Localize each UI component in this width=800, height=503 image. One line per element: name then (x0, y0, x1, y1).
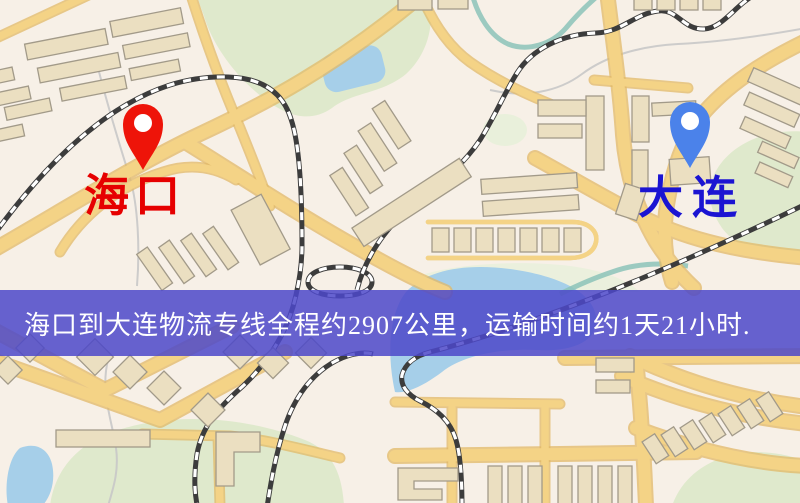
map-image (0, 0, 800, 503)
destination-city-label: 大连 (638, 174, 746, 222)
route-info-banner: 海口到大连物流专线全程约2907公里，运输时间约1天21小时. (0, 290, 800, 356)
destination-pin-icon[interactable] (666, 100, 714, 170)
origin-city-label: 海口 (84, 172, 186, 220)
route-info-text: 海口到大连物流专线全程约2907公里，运输时间约1天21小时. (24, 305, 751, 342)
origin-pin-icon[interactable] (119, 102, 167, 172)
map-canvas[interactable]: 海口 大连 海口到大连物流专线全程约2907公里，运输时间约1天21小时. (0, 0, 800, 503)
